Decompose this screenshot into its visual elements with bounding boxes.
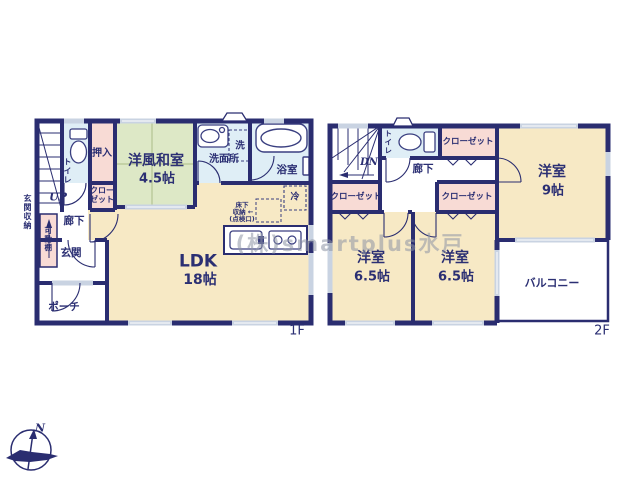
hallway-label-1f: 廊下 <box>64 216 85 227</box>
floorplan-canvas: 玄関収納 可動棚 UP トイレ 押入 洋風和室 4.5帖 クロー ゼット 廊下 … <box>0 0 640 480</box>
closet-label-1f-line1: クロー <box>90 187 114 195</box>
vent-mark-2f <box>393 118 413 126</box>
porch-label: ポーチ <box>48 302 80 313</box>
toilet-label-2f: トイレ <box>384 129 392 155</box>
floor1-label: 1F <box>289 325 305 338</box>
bedroom9-name: 洋室 <box>538 165 566 179</box>
compass-north-label: N <box>35 423 45 434</box>
floor2-plan <box>328 118 611 326</box>
japanese-room-name: 洋風和室 <box>128 154 184 168</box>
closet-right-label: クローゼット <box>441 193 492 202</box>
stairs-up-label: UP <box>49 192 67 203</box>
toilet-label-1f: トイレ <box>63 158 71 185</box>
bathroom-label: 浴室 <box>277 165 298 176</box>
compass-icon <box>6 429 58 470</box>
closet-label-1f-line2: ゼット <box>90 196 114 204</box>
washer-label: 洗 <box>235 141 245 151</box>
japanese-room-size: 4.5帖 <box>139 173 175 186</box>
bedroom65b-size: 6.5帖 <box>438 271 474 284</box>
bedroom9-size: 9帖 <box>542 185 564 198</box>
ldk-name: LDK <box>179 254 217 271</box>
company-watermark: (株)smartplus水戸 <box>236 228 465 258</box>
ldk-size: 18帖 <box>183 273 216 287</box>
sink-icon <box>198 125 228 147</box>
hallway-label-2f: 廊下 <box>413 164 434 175</box>
underfloor-label-line3: (点検口) <box>229 216 254 223</box>
entrance-label: 玄関 <box>61 248 82 259</box>
washroom-label: 洗面所 <box>209 155 239 165</box>
oshiire-label: 押入 <box>92 149 112 159</box>
bedroom65a-size: 6.5帖 <box>354 271 390 284</box>
toilet-icon-1f <box>70 129 87 163</box>
closet-left-label: クローゼット <box>330 193 381 202</box>
entrance-storage-label: 玄関収納 <box>23 194 31 230</box>
refrigerator-label: 冷 <box>290 194 299 203</box>
movable-shelf-label: 可動棚 <box>44 226 52 252</box>
closet-top-label: クローゼット <box>442 138 493 147</box>
stairs-down-label: DN <box>360 158 378 168</box>
floor2-label: 2F <box>594 325 610 338</box>
vent-hood-mark <box>222 113 247 121</box>
balcony-label: バルコニー <box>525 278 580 289</box>
